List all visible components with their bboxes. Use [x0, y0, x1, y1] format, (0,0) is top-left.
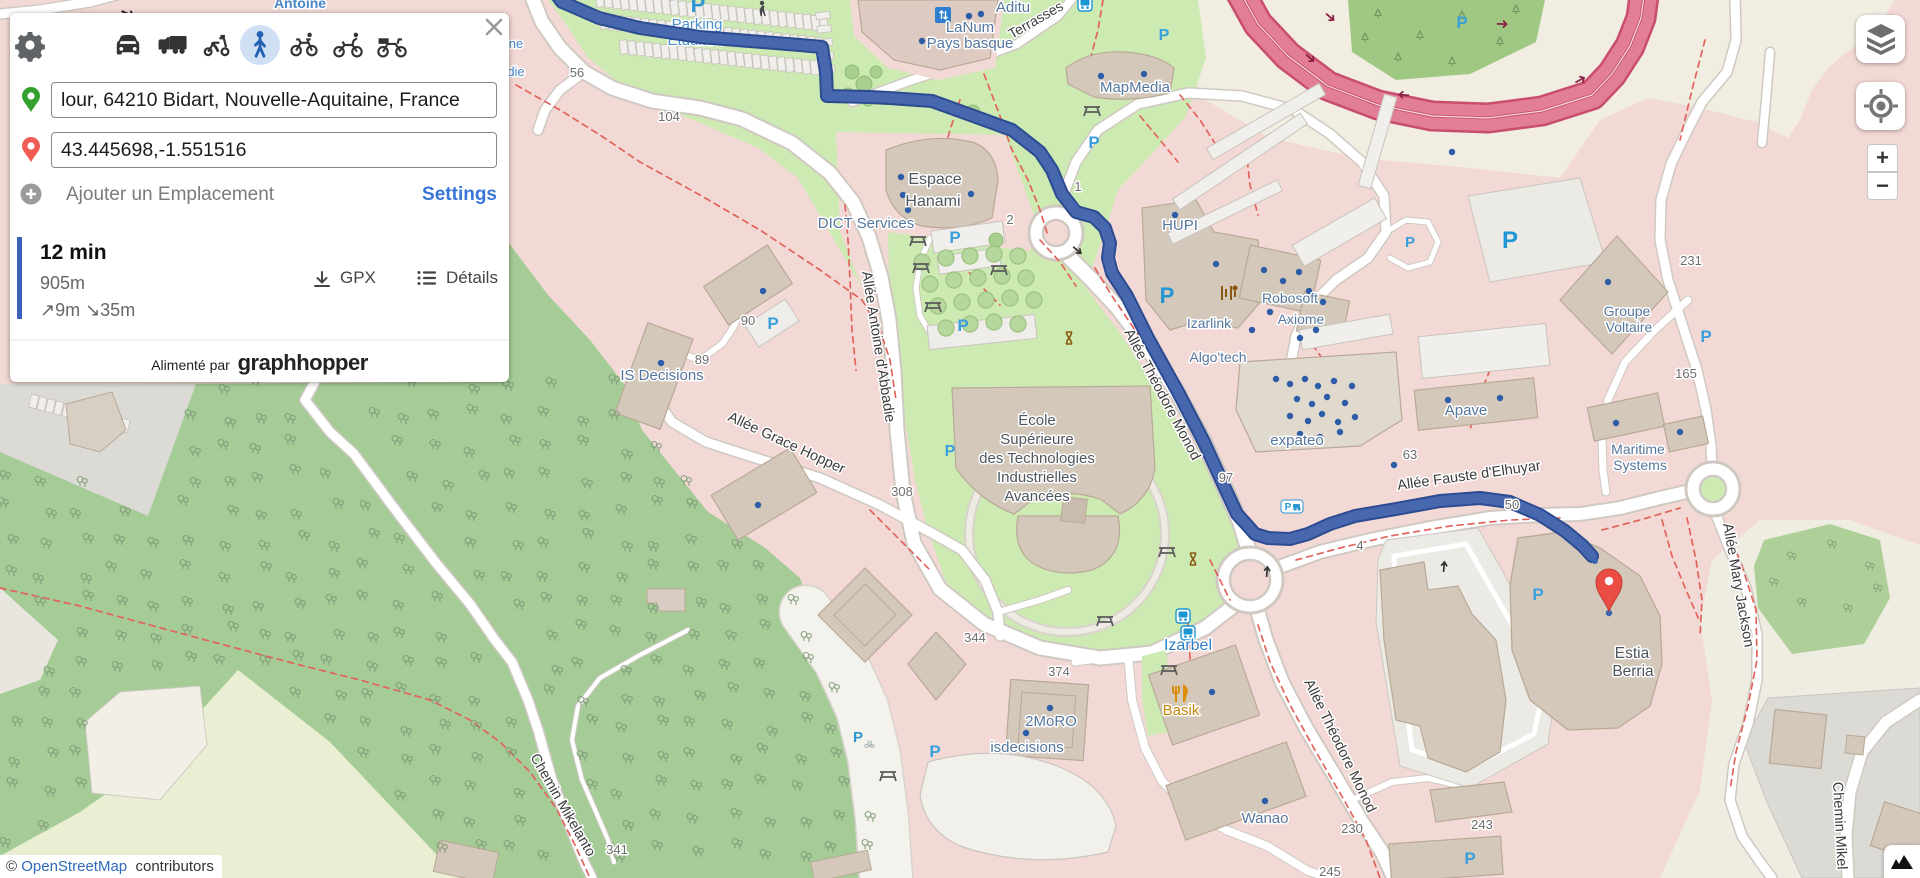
- svg-text:Robosoft: Robosoft: [1262, 290, 1318, 306]
- svg-text:Industrielles: Industrielles: [997, 469, 1077, 486]
- svg-text:Voltaire: Voltaire: [1606, 319, 1653, 335]
- svg-text:P: P: [1532, 585, 1543, 604]
- svg-text:P: P: [1159, 27, 1170, 44]
- svg-text:P: P: [1502, 227, 1518, 254]
- svg-text:Groupe: Groupe: [1604, 303, 1651, 319]
- svg-text:Izarbel: Izarbel: [1164, 637, 1212, 654]
- svg-text:Antoine: Antoine: [274, 0, 326, 11]
- svg-text:IS Decisions: IS Decisions: [620, 367, 703, 384]
- svg-text:DICT Services: DICT Services: [818, 215, 914, 232]
- svg-text:des Technologies: des Technologies: [979, 450, 1095, 467]
- svg-text:P: P: [691, 0, 706, 17]
- svg-text:Estia: Estia: [1615, 645, 1650, 662]
- svg-text:243: 243: [1471, 817, 1493, 832]
- svg-text:Basik: Basik: [1163, 702, 1200, 719]
- svg-text:LaNum: LaNum: [946, 19, 994, 36]
- svg-text:ne: ne: [509, 36, 523, 51]
- svg-text:P: P: [957, 316, 968, 335]
- svg-text:École: École: [1018, 412, 1056, 429]
- svg-text:Izarlink: Izarlink: [1187, 315, 1232, 331]
- svg-text:HUPI: HUPI: [1162, 217, 1198, 234]
- svg-text:isdecisions: isdecisions: [990, 739, 1063, 756]
- svg-text:245: 245: [1319, 864, 1341, 878]
- svg-text:Axiome: Axiome: [1278, 311, 1325, 327]
- svg-text:expateo: expateo: [1270, 432, 1323, 449]
- svg-text:Apave: Apave: [1445, 402, 1488, 419]
- svg-text:die: die: [507, 64, 524, 79]
- svg-text:Pays basque: Pays basque: [927, 35, 1014, 52]
- svg-text:Systems: Systems: [1613, 457, 1667, 473]
- svg-text:97: 97: [1219, 470, 1233, 485]
- svg-text:P: P: [853, 729, 863, 746]
- svg-text:104: 104: [658, 109, 680, 124]
- svg-text:2MoRO: 2MoRO: [1025, 713, 1077, 730]
- svg-text:P: P: [1405, 234, 1415, 251]
- svg-text:Espace: Espace: [908, 171, 961, 188]
- svg-text:Algo'tech: Algo'tech: [1189, 349, 1246, 365]
- svg-text:2: 2: [1006, 212, 1013, 227]
- svg-text:P: P: [1285, 502, 1292, 513]
- svg-text:344: 344: [964, 630, 986, 645]
- svg-text:89: 89: [695, 352, 709, 367]
- svg-text:P: P: [1464, 849, 1475, 868]
- svg-text:374: 374: [1048, 664, 1070, 679]
- svg-text:P: P: [945, 443, 956, 460]
- svg-text:230: 230: [1341, 821, 1363, 836]
- svg-text:MapMedia: MapMedia: [1100, 79, 1171, 96]
- svg-text:Aditu: Aditu: [996, 0, 1030, 16]
- svg-text:P: P: [1088, 133, 1099, 152]
- svg-text:308: 308: [891, 484, 913, 499]
- svg-text:Avancées: Avancées: [1004, 488, 1070, 505]
- svg-text:Maritime: Maritime: [1611, 441, 1665, 457]
- svg-text:P: P: [1160, 283, 1175, 308]
- svg-text:Wanao: Wanao: [1242, 810, 1289, 827]
- svg-text:90: 90: [741, 313, 755, 328]
- svg-text:Hanami: Hanami: [905, 193, 960, 210]
- svg-text:56: 56: [570, 65, 584, 80]
- svg-text:P: P: [1456, 13, 1467, 32]
- svg-text:231: 231: [1680, 253, 1702, 268]
- svg-text:P: P: [767, 314, 778, 333]
- svg-text:Supérieure: Supérieure: [1000, 431, 1073, 448]
- svg-text:4: 4: [1356, 538, 1363, 553]
- svg-text:165: 165: [1675, 366, 1697, 381]
- svg-text:Berria: Berria: [1612, 663, 1654, 680]
- svg-text:P: P: [929, 742, 940, 761]
- svg-text:P: P: [949, 228, 960, 247]
- svg-text:341: 341: [606, 842, 628, 857]
- svg-text:P: P: [1700, 327, 1711, 346]
- svg-text:🚲: 🚲: [864, 738, 875, 748]
- svg-text:63: 63: [1403, 447, 1417, 462]
- svg-text:50: 50: [1505, 497, 1519, 512]
- svg-text:1: 1: [1074, 179, 1081, 194]
